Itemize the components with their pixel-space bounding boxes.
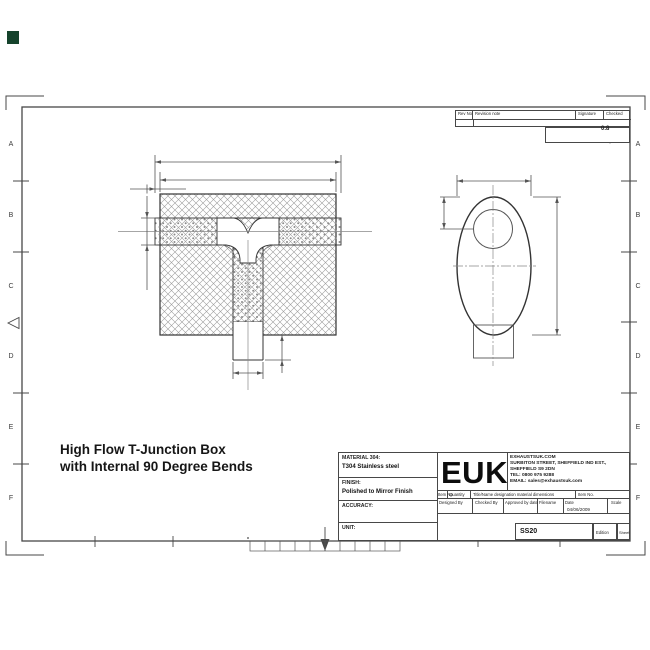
drawing-title-line2: with Internal 90 Degree Bends [60, 458, 253, 475]
revision-table: Rev No Revision note Signature Checked [455, 110, 630, 127]
sheet-label: Sheet [619, 530, 629, 535]
title-block-grid [338, 500, 437, 501]
material-label: MATERIAL 304: [342, 455, 380, 461]
drawing-title-line1: High Flow T-Junction Box [60, 441, 226, 458]
linework-layer [0, 0, 650, 650]
edition-label: Edition [596, 530, 609, 535]
title-block-grid [575, 490, 576, 498]
sheet-cell: Sheet [617, 523, 630, 540]
revision-col-note: Revision note [473, 111, 576, 119]
zone-letter-right-e: E [631, 424, 645, 431]
title-block-grid [338, 522, 437, 523]
surface-finish-value: 0.8 [601, 126, 609, 132]
material-value: T304 Stainless steel [342, 464, 399, 470]
title-block-grid [437, 513, 630, 514]
title-block-grid [503, 498, 504, 513]
doc-code: SS20 [520, 528, 537, 535]
surface-finish-box [545, 127, 630, 143]
zone-letter-left-c: C [4, 283, 18, 290]
unit-label: UNIT: [342, 525, 355, 531]
zone-letter-right-c: C [631, 283, 645, 290]
edition-cell: Edition [593, 523, 617, 540]
title-block-grid [437, 498, 630, 499]
company-logo: EUK [441, 455, 508, 491]
zone-letter-left-f: F [4, 495, 18, 502]
title-block-grid [470, 490, 471, 498]
zone-letter-right-a: A [631, 141, 645, 148]
doc-code-cell: SS20 [515, 523, 593, 540]
title-block-grid [338, 477, 437, 478]
zone-letter-left-a: A [4, 141, 18, 148]
end-view [453, 185, 536, 366]
designation-label: Title/Name designation material dimensio… [473, 492, 554, 497]
item-no2-label: Item No. [578, 492, 594, 497]
company-address-line5: EMAIL: sales@exhaustsuk.com [510, 479, 582, 485]
zone-letter-left-d: D [4, 353, 18, 360]
checked-by-label: Checked By [475, 500, 498, 505]
designed-by-label: Designed By [439, 500, 463, 505]
title-block-grid [472, 498, 473, 513]
zone-letter-left-e: E [4, 424, 18, 431]
reference-strip [250, 541, 400, 551]
revision-col-checked: Checked [604, 111, 630, 119]
zone-letter-right-f: F [631, 495, 645, 502]
title-block-grid [607, 498, 608, 513]
zone-letter-right-b: B [631, 212, 645, 219]
date-label: Date [565, 500, 574, 505]
scale-label: Scale [611, 500, 621, 505]
drawing-sheet: A B C D E F A B C D E F Rev No Revision … [0, 0, 650, 650]
zone-letter-right-d: D [631, 353, 645, 360]
accuracy-label: ACCURACY: [342, 503, 373, 509]
finish-value: Polished to Mirror Finish [342, 489, 413, 495]
finish-label: FINISH: [342, 480, 361, 486]
revision-col-signature: Signature [576, 111, 604, 119]
revision-col-rev-no: Rev No [456, 111, 473, 119]
title-block-grid [437, 452, 438, 541]
title-block-grid [563, 498, 564, 513]
approved-by-label: Approved by date [505, 500, 538, 505]
front-section-view [118, 194, 372, 390]
date-value: 04/06/2009 [567, 507, 590, 512]
filename-label: Filename [539, 500, 556, 505]
revision-grid-line [473, 119, 474, 127]
quantity-label: Quantity [449, 492, 465, 497]
revision-row-divider [456, 119, 631, 120]
zone-letter-left-b: B [4, 212, 18, 219]
